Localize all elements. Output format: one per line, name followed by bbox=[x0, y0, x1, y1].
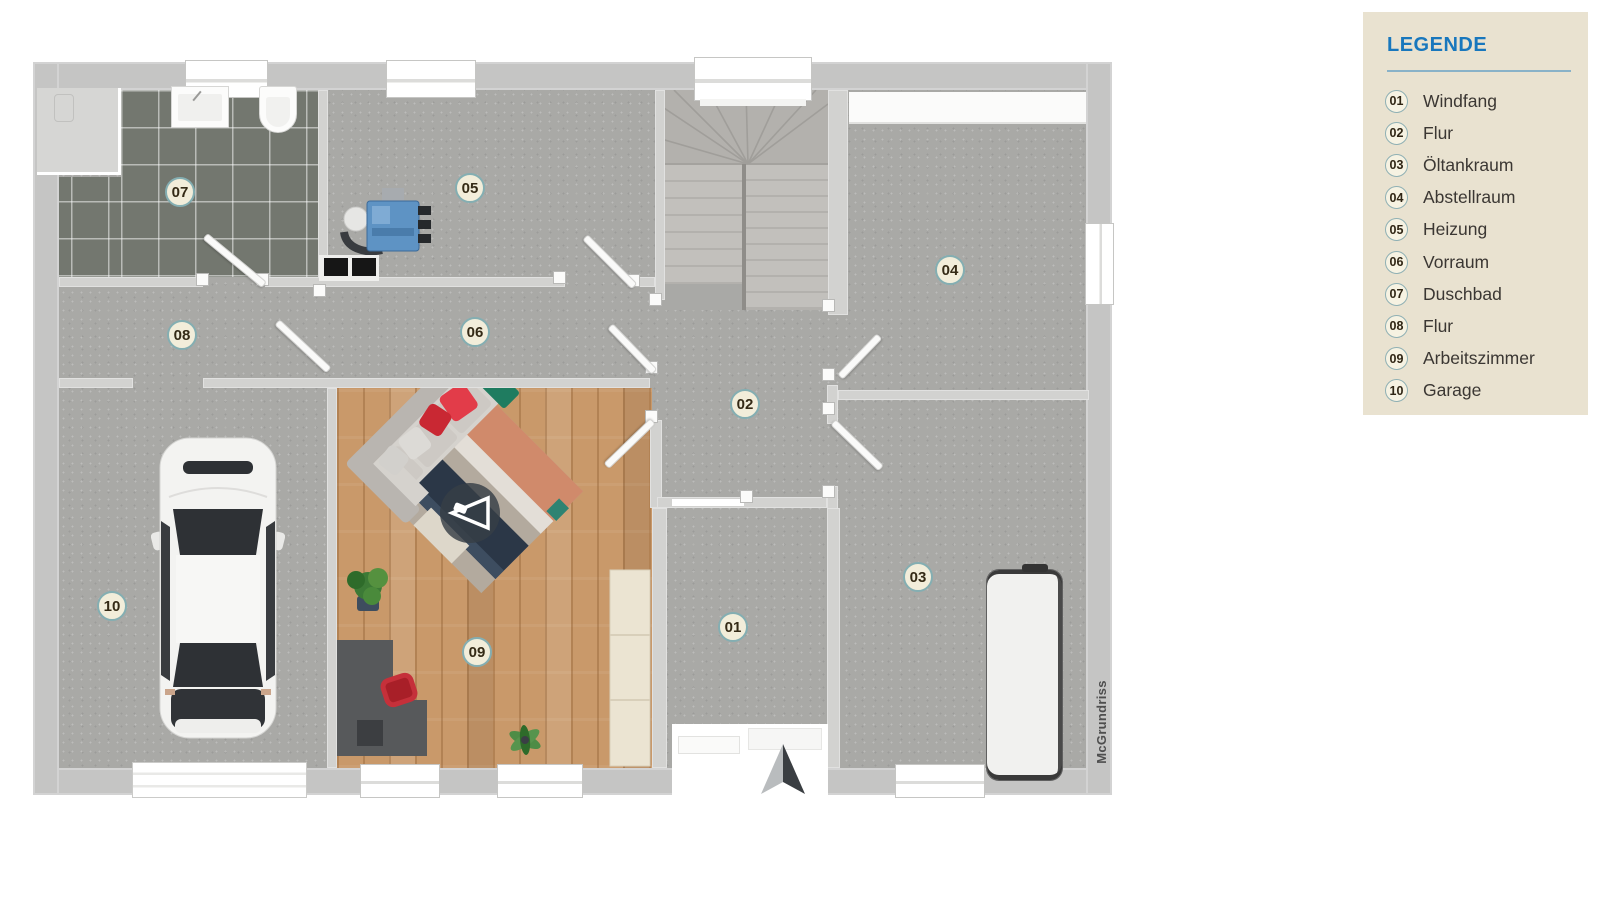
room-badge-03: 03 bbox=[903, 562, 933, 592]
window-right-04 bbox=[1085, 223, 1114, 305]
wall-01-03 bbox=[827, 508, 840, 768]
legend-item-label: Flur bbox=[1423, 316, 1453, 337]
wall-corridor-top-a bbox=[59, 277, 203, 287]
toilet bbox=[259, 86, 297, 133]
oil-tank-cap bbox=[1022, 564, 1048, 572]
heater-unit bbox=[336, 186, 436, 262]
legend-item-number: 08 bbox=[1385, 315, 1408, 338]
room-badge-02: 02 bbox=[730, 389, 760, 419]
floor-plan-page: McGrundriss 01 02 03 04 05 06 07 08 09 1… bbox=[0, 0, 1600, 901]
window-bottom-1 bbox=[360, 764, 440, 798]
exterior-niche bbox=[37, 88, 121, 175]
room-badge-08: 08 bbox=[167, 320, 197, 350]
legend-item-label: Vorraum bbox=[1423, 252, 1489, 273]
door-frame bbox=[553, 271, 566, 284]
legend-item-label: Garage bbox=[1423, 380, 1481, 401]
office-furniture bbox=[337, 388, 652, 768]
door-frame bbox=[649, 293, 662, 306]
legend-item: 07Duschbad bbox=[1385, 278, 1575, 310]
door-frame bbox=[822, 299, 835, 312]
plant-icon-2 bbox=[507, 725, 543, 756]
window-sill bbox=[700, 99, 806, 106]
legend-item-number: 03 bbox=[1385, 154, 1408, 177]
legend-item: 03Öltankraum bbox=[1385, 149, 1575, 181]
wall-09-01 bbox=[652, 508, 667, 768]
room-badge-05: 05 bbox=[455, 173, 485, 203]
window-top-3 bbox=[694, 57, 812, 101]
legend-item-label: Flur bbox=[1423, 123, 1453, 144]
north-arrow-icon bbox=[757, 742, 809, 798]
door-frame bbox=[196, 273, 209, 286]
legend-item-label: Heizung bbox=[1423, 219, 1487, 240]
legend-item-label: Windfang bbox=[1423, 91, 1497, 112]
door-frame bbox=[313, 284, 326, 297]
legend-item-number: 07 bbox=[1385, 283, 1408, 306]
legend-item: 01Windfang bbox=[1385, 85, 1575, 117]
door-frame bbox=[740, 490, 753, 503]
niche-fixture-sketch bbox=[54, 94, 74, 122]
legend-item-number: 10 bbox=[1385, 379, 1408, 402]
room-badge-06: 06 bbox=[460, 317, 490, 347]
wall-10-09 bbox=[327, 388, 337, 768]
legend-item: 09Arbeitszimmer bbox=[1385, 343, 1575, 375]
room-badge-07: 07 bbox=[165, 177, 195, 207]
wall-corridor-top-b bbox=[265, 277, 565, 287]
room-badge-04: 04 bbox=[935, 255, 965, 285]
legend-divider bbox=[1387, 70, 1571, 72]
wall-stairs-right bbox=[828, 90, 848, 315]
sliding-door-01 bbox=[672, 499, 744, 506]
room-badge-01: 01 bbox=[718, 612, 748, 642]
garage-door bbox=[132, 762, 307, 798]
legend-item-number: 06 bbox=[1385, 251, 1408, 274]
legend-panel: LEGENDE 01Windfang 02Flur 03Öltankraum 0… bbox=[1363, 12, 1588, 415]
wall-corridor-bottom-a bbox=[59, 378, 133, 388]
legend-list: 01Windfang 02Flur 03Öltankraum 04Abstell… bbox=[1385, 85, 1575, 407]
legend-item-label: Abstellraum bbox=[1423, 187, 1515, 208]
wall-07-05 bbox=[318, 90, 328, 277]
legend-title: LEGENDE bbox=[1387, 34, 1487, 57]
car bbox=[151, 437, 285, 739]
legend-item-number: 01 bbox=[1385, 90, 1408, 113]
room-badge-09: 09 bbox=[462, 637, 492, 667]
mat-2 bbox=[352, 258, 376, 276]
room-badge-10: 10 bbox=[97, 591, 127, 621]
legend-item: 10Garage bbox=[1385, 375, 1575, 407]
oil-tank bbox=[987, 570, 1062, 780]
wall-corridor-top-c bbox=[639, 277, 655, 287]
plant-icon bbox=[347, 568, 388, 611]
door-frame bbox=[822, 368, 835, 381]
wall-corridor-bottom-b bbox=[203, 378, 650, 388]
legend-item-label: Öltankraum bbox=[1423, 155, 1513, 176]
legend-item-label: Arbeitszimmer bbox=[1423, 348, 1535, 369]
legend-item-label: Duschbad bbox=[1423, 284, 1502, 305]
legend-item-number: 05 bbox=[1385, 218, 1408, 241]
legend-item: 04Abstellraum bbox=[1385, 182, 1575, 214]
closet-04 bbox=[849, 92, 1086, 124]
entrance-step bbox=[678, 736, 740, 754]
bathroom-tile-floor-ext bbox=[59, 177, 121, 277]
window-bottom-2 bbox=[497, 764, 583, 798]
window-bottom-3 bbox=[895, 764, 985, 798]
staircase bbox=[658, 90, 828, 310]
legend-item-number: 09 bbox=[1385, 347, 1408, 370]
sink bbox=[171, 86, 229, 128]
legend-item-number: 04 bbox=[1385, 186, 1408, 209]
door-frame bbox=[822, 402, 835, 415]
watermark: McGrundriss bbox=[1094, 666, 1110, 778]
mat-1 bbox=[324, 258, 348, 276]
window-top-2 bbox=[386, 60, 476, 98]
wall-04-03 bbox=[838, 390, 1089, 400]
legend-item: 02Flur bbox=[1385, 117, 1575, 149]
legend-item-number: 02 bbox=[1385, 122, 1408, 145]
wall-stairs-left bbox=[655, 90, 665, 300]
legend-item: 08Flur bbox=[1385, 310, 1575, 342]
legend-item: 06Vorraum bbox=[1385, 246, 1575, 278]
door-frame bbox=[822, 485, 835, 498]
legend-item: 05Heizung bbox=[1385, 214, 1575, 246]
